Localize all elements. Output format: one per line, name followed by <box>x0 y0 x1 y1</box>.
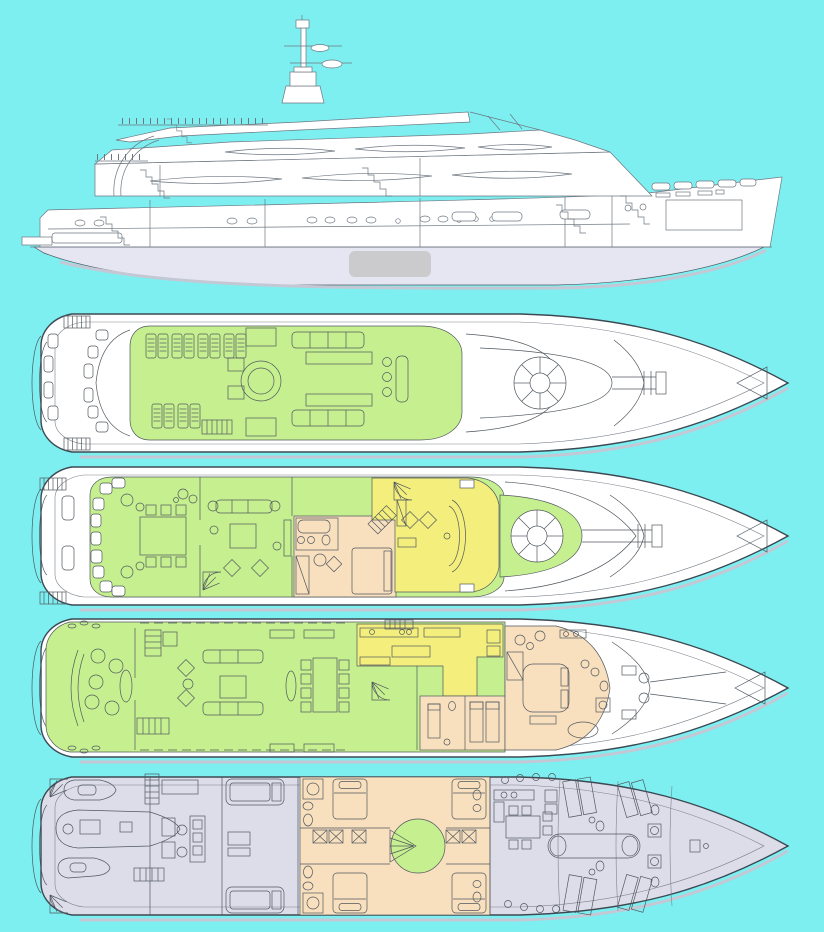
radar-mast-icon <box>511 510 563 562</box>
sun-deck-plan <box>32 314 788 457</box>
stairs-icon <box>64 438 90 450</box>
stairs-icon <box>40 478 66 490</box>
yacht-general-arrangement-sheet <box>0 0 824 932</box>
radar-dome-icon <box>311 45 329 52</box>
bridge-deck-plan <box>32 467 788 610</box>
stairs-icon <box>40 592 66 604</box>
stairs-icon <box>64 316 90 328</box>
swim-platform <box>22 237 52 245</box>
radar-mast-icon <box>514 357 566 409</box>
garage-shading-patch <box>349 251 431 277</box>
main-deck-plan <box>32 619 788 762</box>
radar-dome-icon <box>322 60 342 68</box>
